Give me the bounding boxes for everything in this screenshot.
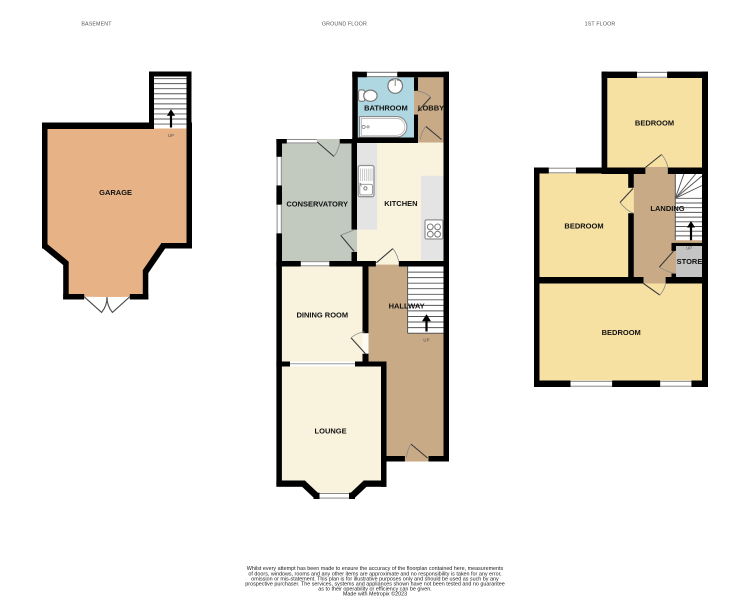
svg-text:LOBBY: LOBBY xyxy=(418,103,444,112)
svg-text:CONSERVATORY: CONSERVATORY xyxy=(286,200,348,209)
svg-text:BATHROOM: BATHROOM xyxy=(364,103,408,112)
svg-text:UP: UP xyxy=(686,246,692,251)
svg-text:LOUNGE: LOUNGE xyxy=(315,427,347,436)
svg-text:STORE: STORE xyxy=(677,257,703,266)
svg-text:LANDING: LANDING xyxy=(650,204,684,213)
svg-text:1ST FLOOR: 1ST FLOOR xyxy=(585,22,616,28)
svg-text:Made with Metropix ©2023: Made with Metropix ©2023 xyxy=(343,591,407,598)
svg-text:GARAGE: GARAGE xyxy=(99,188,132,197)
svg-text:BEDROOM: BEDROOM xyxy=(635,118,674,127)
svg-text:GROUND FLOOR: GROUND FLOOR xyxy=(322,22,367,28)
svg-text:BASEMENT: BASEMENT xyxy=(81,22,112,28)
svg-text:BEDROOM: BEDROOM xyxy=(564,222,603,231)
svg-text:HALLWAY: HALLWAY xyxy=(389,302,425,311)
svg-text:DINING ROOM: DINING ROOM xyxy=(296,311,348,320)
svg-text:UP: UP xyxy=(423,338,429,343)
svg-text:KITCHEN: KITCHEN xyxy=(384,199,417,208)
svg-text:BEDROOM: BEDROOM xyxy=(602,328,641,337)
svg-text:UP: UP xyxy=(168,133,174,138)
